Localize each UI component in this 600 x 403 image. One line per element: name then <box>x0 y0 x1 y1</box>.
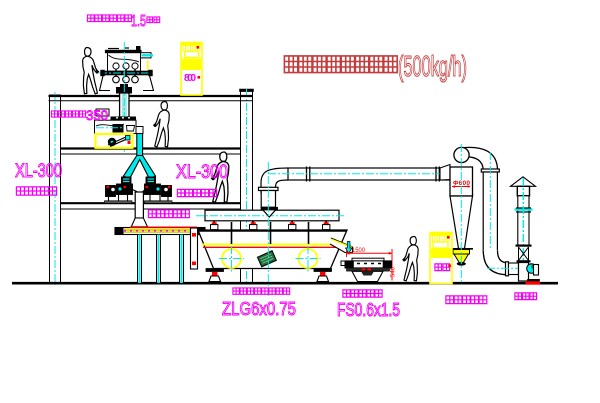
svg-text:FS0.6x1.5: FS0.6x1.5 <box>337 300 400 320</box>
svg-text:350: 350 <box>86 107 108 123</box>
svg-text:1.5: 1.5 <box>131 13 146 30</box>
svg-text:(500kg/h): (500kg/h) <box>398 51 467 83</box>
svg-text:800: 800 <box>184 73 196 84</box>
svg-text:XL-300: XL-300 <box>176 162 228 183</box>
svg-text:XL-300: XL-300 <box>15 161 62 182</box>
svg-text:ZLG6x0.75: ZLG6x0.75 <box>222 299 296 319</box>
svg-text:1500: 1500 <box>352 248 366 254</box>
